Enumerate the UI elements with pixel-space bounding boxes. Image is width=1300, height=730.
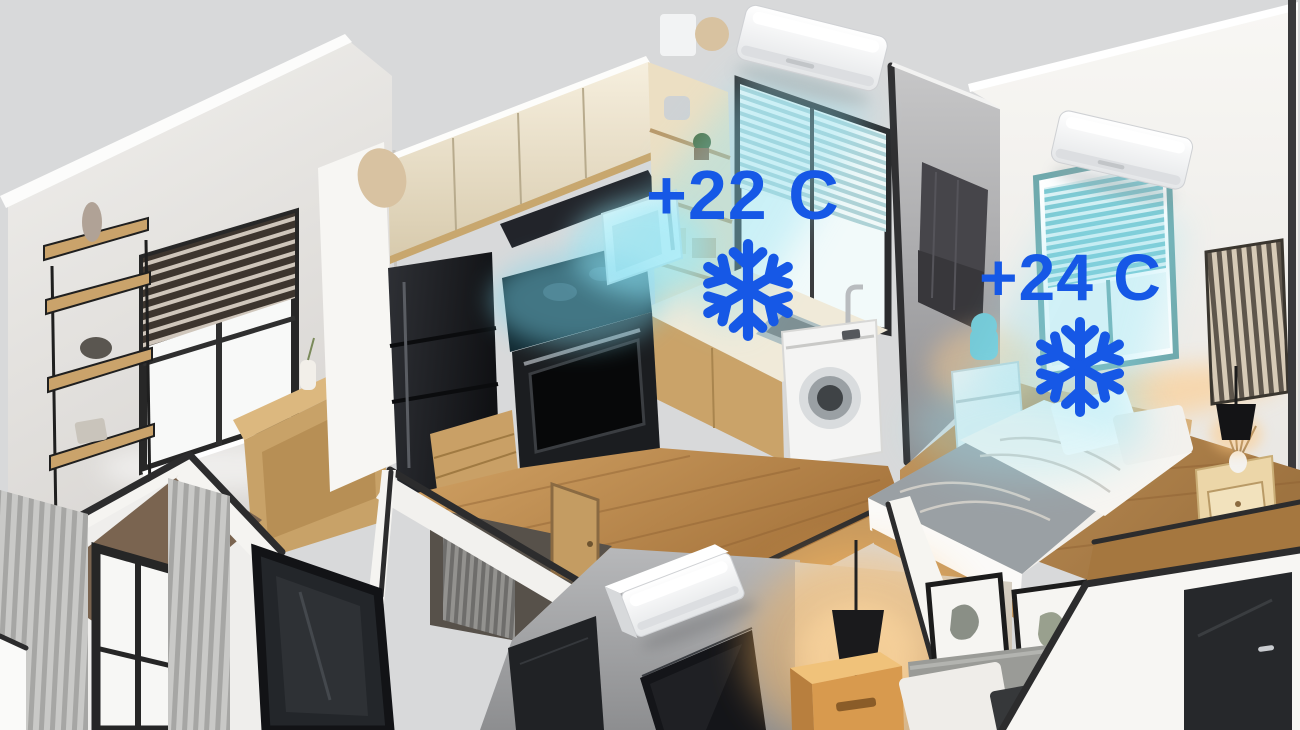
bedroom-temperature-label: +24 C bbox=[979, 240, 1162, 314]
outer-wall-edge bbox=[0, 638, 26, 730]
apartment-cutaway-illustration: +22 C +24 C bbox=[0, 0, 1300, 730]
hanging-towel bbox=[918, 162, 988, 332]
vase bbox=[300, 360, 316, 390]
lower-window bbox=[96, 548, 180, 730]
wall-tapestry bbox=[1206, 240, 1288, 404]
entry-door bbox=[1184, 572, 1292, 730]
curtain-right bbox=[168, 478, 230, 730]
washing-machine bbox=[782, 320, 882, 468]
kitchen-temperature-label: +22 C bbox=[646, 156, 840, 234]
wall-cut-edge bbox=[1288, 0, 1296, 472]
